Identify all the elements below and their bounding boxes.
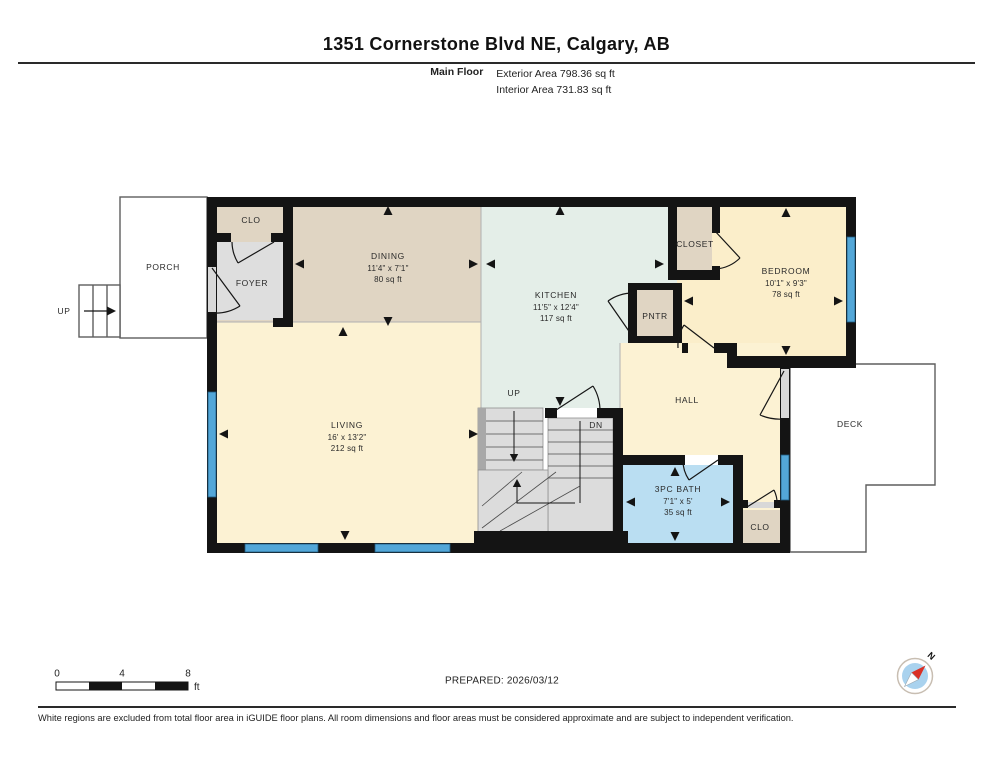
room-label-pantry: PNTR <box>642 311 668 321</box>
scale-unit: ft <box>194 682 200 693</box>
room-label-clo-bottom: CLO <box>750 522 769 532</box>
scale-tick-8: 8 <box>185 669 191 680</box>
scale-tick-0: 0 <box>54 669 60 680</box>
room-label-bath: 3PC BATH 7'1" x 5' 35 sq ft <box>655 484 702 518</box>
room-label-kitchen: KITCHEN 11'5" x 12'4" 117 sq ft <box>533 290 579 324</box>
room-label-deck: DECK <box>837 419 863 429</box>
room-label-closet: CLOSET <box>676 239 714 249</box>
floorplan-page: 1351 Cornerstone Blvd NE, Calgary, AB Ma… <box>0 0 993 768</box>
room-label-dining: DINING 11'4" x 7'1" 80 sq ft <box>367 251 408 285</box>
room-label-bedroom: BEDROOM 10'1" x 9'3" 78 sq ft <box>762 266 811 300</box>
porch-up-label: UP <box>57 306 70 316</box>
room-label-living: LIVING 16' x 13'2" 212 sq ft <box>328 420 367 454</box>
floorplan-drawing <box>0 0 993 768</box>
prepared-date: PREPARED: 2026/03/12 <box>445 676 559 687</box>
porch-outline <box>79 197 207 338</box>
deck-outline <box>790 364 935 552</box>
footer-divider <box>38 706 956 708</box>
room-label-clo-top: CLO <box>241 215 260 225</box>
scale-bar <box>56 682 188 690</box>
stairs-up-label: UP <box>507 388 520 398</box>
room-label-hall: HALL <box>675 395 699 405</box>
compass-icon <box>898 659 933 694</box>
room-label-porch: PORCH <box>146 262 180 272</box>
room-label-foyer: FOYER <box>236 278 268 288</box>
scale-tick-4: 4 <box>119 669 125 680</box>
footer-disclaimer: White regions are excluded from total fl… <box>38 713 794 723</box>
stairs-dn-label: DN <box>589 420 602 430</box>
